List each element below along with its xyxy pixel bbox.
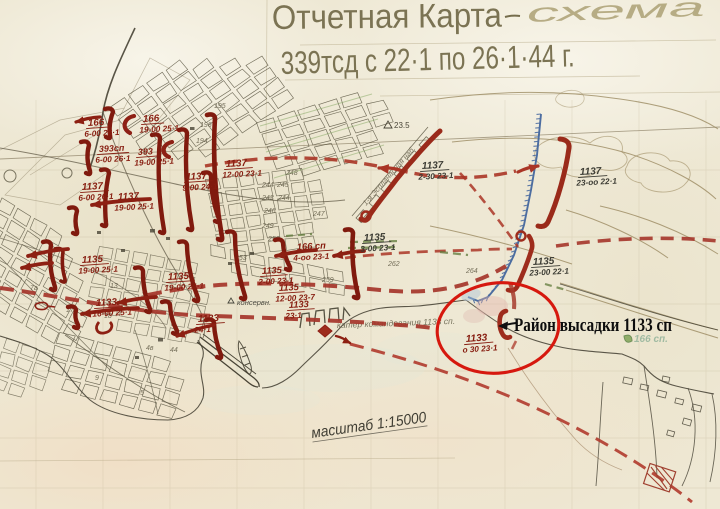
svg-text:Отчетная Карта: Отчетная Карта xyxy=(272,0,502,37)
svg-text:3-00 23-1: 3-00 23-1 xyxy=(360,243,396,254)
svg-text:5: 5 xyxy=(140,390,144,397)
svg-text:1133: 1133 xyxy=(289,299,310,310)
svg-text:339тсд с 22·1 по 26·1·44 г.: 339тсд с 22·1 по 26·1·44 г. xyxy=(280,37,575,81)
svg-text:6-00 26·1: 6-00 26·1 xyxy=(95,154,131,165)
svg-text:44: 44 xyxy=(170,347,178,354)
svg-text:23.5: 23.5 xyxy=(394,121,410,130)
svg-text:244: 244 xyxy=(277,195,290,202)
svg-text:195: 195 xyxy=(214,103,226,110)
svg-text:393: 393 xyxy=(138,146,154,157)
svg-text:243: 243 xyxy=(261,195,274,202)
svg-text:166 сп: 166 сп xyxy=(297,240,327,252)
svg-text:248: 248 xyxy=(285,170,298,177)
svg-text:1135: 1135 xyxy=(262,265,283,276)
svg-text:247: 247 xyxy=(312,211,326,218)
svg-text:194: 194 xyxy=(196,138,208,145)
svg-text:24·1: 24·1 xyxy=(193,325,211,335)
svg-text:393сп: 393сп xyxy=(99,143,126,154)
svg-text:9-00 24·1: 9-00 24·1 xyxy=(182,182,218,193)
svg-text:9: 9 xyxy=(95,375,99,382)
svg-text:23·1: 23·1 xyxy=(284,311,302,321)
svg-text:246: 246 xyxy=(263,208,276,215)
svg-text:196: 196 xyxy=(200,122,212,129)
svg-text:1135: 1135 xyxy=(279,282,300,293)
svg-text:264: 264 xyxy=(465,268,478,275)
svg-text:Район высадки 1133 сп: Район высадки 1133 сп xyxy=(514,315,672,336)
svg-text:262: 262 xyxy=(387,261,400,268)
svg-text:245: 245 xyxy=(276,182,289,189)
svg-text:13: 13 xyxy=(110,283,118,290)
svg-text:6-00 26·1: 6-00 26·1 xyxy=(84,128,120,139)
svg-text:244: 244 xyxy=(261,182,274,189)
svg-text:259: 259 xyxy=(321,277,334,284)
svg-text:6-00 26·1: 6-00 26·1 xyxy=(78,192,114,203)
svg-text:249: 249 xyxy=(261,223,274,230)
svg-text:2-30 23-1: 2-30 23-1 xyxy=(417,171,454,182)
svg-text:4в: 4в xyxy=(146,345,154,352)
